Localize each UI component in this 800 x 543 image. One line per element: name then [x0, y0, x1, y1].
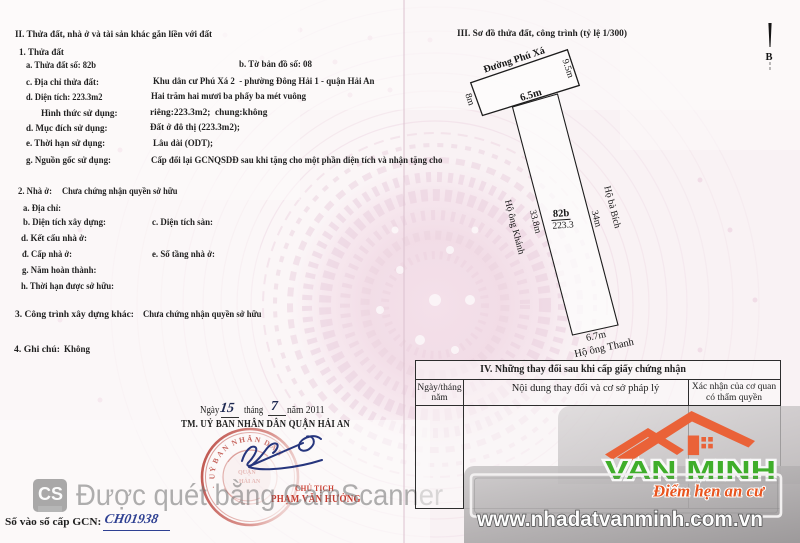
svg-text:VAN MINH: VAN MINH	[605, 455, 776, 485]
svg-text:www.nhadatvanminh.com.vn: www.nhadatvanminh.com.vn	[476, 507, 763, 531]
svg-text:Điểm hẹn an cư: Điểm hẹn an cư	[652, 482, 765, 501]
